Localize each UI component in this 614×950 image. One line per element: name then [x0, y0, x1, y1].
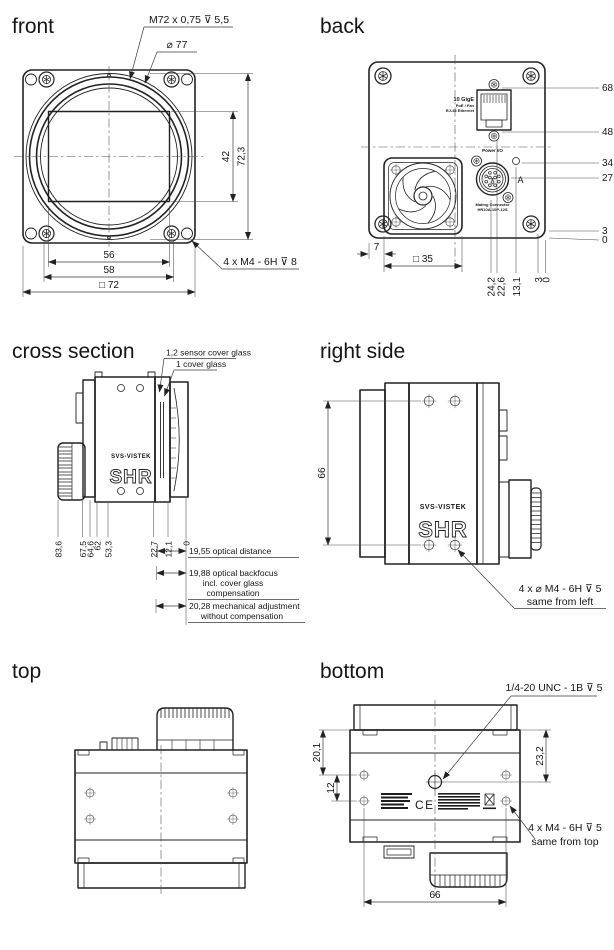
top-view-body: [75, 708, 247, 897]
dim-56: 56: [103, 250, 115, 261]
side-connector-1: [499, 410, 507, 431]
model-logo: SHR: [109, 467, 152, 488]
dim-12: 12: [326, 782, 337, 794]
right-side-body: SVS-VISTEK SHR: [360, 383, 541, 564]
technical-drawing-page: front M72 x 0,75 ⊽ 5,5 ⌀ 77 4 x M4 - 6H …: [0, 0, 614, 950]
ce-mark: CE: [415, 798, 435, 812]
dim-0-bottom: 0: [542, 277, 553, 283]
back-view-drawing: back 10 GigE PoE / Fan RJ-45 Ethernet: [307, 0, 614, 310]
backfocus-note-line3: compensation: [207, 588, 260, 598]
dim-22-6: 22,6: [497, 277, 508, 297]
back-title: back: [320, 15, 365, 38]
right-side-title: right side: [320, 340, 405, 363]
side-screw-note-line1: 4 x ⌀ M4 - 6H ⊽ 5: [519, 583, 602, 595]
dim-66: 66: [317, 467, 328, 479]
backfocus-note-line2: incl. cover glass: [203, 578, 263, 588]
dim-sq35: □ 35: [413, 254, 433, 265]
front-view-drawing: front M72 x 0,75 ⊽ 5,5 ⌀ 77 4 x M4 - 6H …: [0, 0, 307, 310]
bottom-view: bottom CE: [307, 650, 614, 950]
dim-23-2: 23,2: [535, 746, 546, 766]
dim-12-1: 12,1: [164, 541, 174, 558]
bottom-view-drawing: bottom CE: [307, 650, 614, 950]
front-title: front: [12, 15, 54, 38]
rear-housing: [477, 383, 499, 564]
back-body: [369, 62, 545, 238]
power-pins: [485, 171, 500, 186]
dim-34-3: 34,3: [602, 158, 614, 169]
dim-sq72: □ 72: [99, 280, 119, 291]
bottom-view-body: [350, 700, 520, 896]
front-screw-note: 4 x M4 - 6H ⊽ 8: [223, 256, 297, 268]
weee-icon: [483, 794, 496, 809]
cross-section-drawing: cross section SVS-VISTEK SHR 1,2 sensor …: [0, 330, 307, 640]
bottom-connector: [384, 846, 414, 858]
fan-grille: [384, 158, 462, 234]
glass-notes: 1,2 sensor cover glass 1 cover glass: [160, 348, 252, 397]
front-plate: [385, 383, 409, 564]
mechanical-note-line2: without compensation: [200, 611, 283, 621]
top-title: top: [12, 660, 41, 683]
right-side-drawing: right side SVS-VISTEK SHR 66 4 x ⌀ M4 - …: [307, 330, 614, 640]
bottom-screw-note-line1: 4 x M4 - 6H ⊽ 5: [528, 822, 602, 834]
dim-53-3: 53,3: [104, 541, 114, 558]
fan-housing-bottom: [430, 853, 507, 887]
model-logo: SHR: [418, 517, 467, 542]
side-screw-note-line2: same from left: [527, 596, 594, 608]
dim-83-6: 83,6: [54, 541, 64, 558]
diameter-note: ⌀ 77: [167, 39, 188, 51]
fan-housing-top: [157, 708, 233, 750]
optical-notes: 19,55 optical distance 19,88 optical bac…: [156, 544, 305, 623]
camera-cross-section-body: SVS-VISTEK SHR: [58, 372, 188, 502]
dim-62: 62: [93, 541, 103, 551]
dim-13-1: 13,1: [512, 277, 523, 297]
rear-connector-block: [58, 443, 85, 500]
lens-flange: [354, 705, 517, 730]
dim-0: 0: [182, 541, 192, 546]
dim-42: 42: [221, 151, 232, 163]
dim-20-1: 20,1: [312, 742, 323, 762]
bottom-title: bottom: [320, 660, 384, 683]
back-right-dimensions: 68,5 48,5 34,3 27,2 3 0: [502, 83, 614, 246]
top-view-drawing: top: [0, 650, 307, 950]
top-view: top: [0, 650, 307, 950]
back-view: back 10 GigE PoE / Fan RJ-45 Ethernet: [307, 0, 614, 310]
mating-connector-line2: HR10A-10P-12S: [477, 207, 507, 212]
tripod-note: 1/4-20 UNC - 1B ⊽ 5: [506, 682, 603, 694]
back-corner-screws: [375, 68, 539, 232]
power-connector: A Power I/O Mating Connector HR10A-10P-1…: [472, 148, 524, 212]
centerlines: [361, 55, 553, 268]
ethernet-label-line3: RJ-45 Ethernet: [446, 108, 475, 113]
fan-housing: [509, 480, 531, 558]
dim-58: 58: [103, 265, 115, 276]
front-view: front M72 x 0,75 ⊽ 5,5 ⌀ 77 4 x M4 - 6H …: [0, 0, 307, 310]
backfocus-note-line1: 19,88 optical backfocus: [189, 568, 278, 578]
front-body: [14, 66, 204, 247]
dim-68-5: 68,5: [602, 83, 614, 94]
cover-glass-note: 1 cover glass: [176, 359, 226, 369]
dim-7: 7: [374, 242, 380, 253]
bottom-screw-note-line2: same from top: [531, 836, 598, 848]
dim-48-5: 48,5: [602, 127, 614, 138]
lens-flange: [78, 863, 245, 888]
dim-66: 66: [429, 890, 441, 901]
brand-logo: SVS-VISTEK: [420, 504, 467, 511]
mechanical-note-line1: 20,28 mechanical adjustment: [189, 601, 300, 611]
ethernet-connector: 10 GigE PoE / Fan RJ-45 Ethernet: [446, 80, 511, 142]
camera-label: CE: [381, 793, 496, 812]
cross-section-title: cross section: [12, 340, 135, 363]
optical-distance-note: 19,55 optical distance: [189, 546, 271, 556]
marker-a: A: [518, 175, 524, 185]
dim-72-3: 72,3: [237, 146, 248, 166]
centerlines: [14, 66, 204, 247]
front-dimensions: 42 72,3 56 58 □ 72: [23, 74, 253, 298]
dim-27-2: 27,2: [602, 173, 614, 184]
front-annotations: M72 x 0,75 ⊽ 5,5 ⌀ 77 4 x M4 - 6H ⊽ 8: [130, 14, 299, 269]
dim-0-right: 0: [602, 235, 608, 246]
bottom-annotations: 1/4-20 UNC - 1B ⊽ 5 4 x M4 - 6H ⊽ 5 same…: [443, 682, 603, 848]
power-label: Power I/O: [482, 148, 503, 153]
sensor-glass-note: 1,2 sensor cover glass: [166, 348, 251, 358]
bottom-dimensions: 20,1 12 23,2 66: [312, 730, 551, 907]
side-connector-2: [499, 436, 507, 460]
brand-logo: SVS-VISTEK: [111, 454, 151, 460]
top-connector: [112, 738, 138, 750]
cross-section-view: cross section SVS-VISTEK SHR 1,2 sensor …: [0, 330, 307, 640]
lens-barrel: [360, 390, 385, 557]
right-side-view: right side SVS-VISTEK SHR 66 4 x ⌀ M4 - …: [307, 330, 614, 640]
thread-note: M72 x 0,75 ⊽ 5,5: [149, 14, 229, 26]
